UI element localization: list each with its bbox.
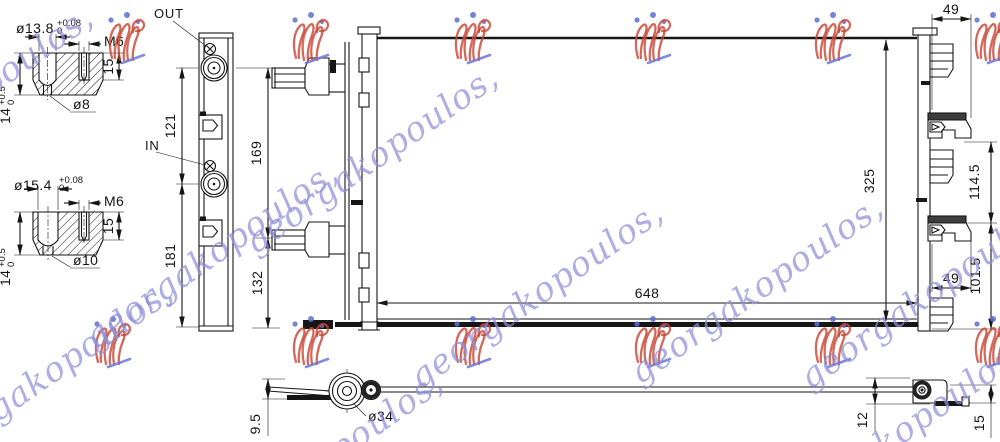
dim-through-dia: ø8 <box>73 96 90 112</box>
rail-bracket-stack-top <box>930 44 953 77</box>
dim-thread-depth: 15 <box>100 218 116 234</box>
label-out-port: OUT <box>154 6 184 21</box>
dim-hole-dia: ø15.4 <box>14 177 52 193</box>
dim-end-height: 9.5 <box>247 414 263 435</box>
dim-pipe-lower: 132 <box>249 271 265 296</box>
rail-mount-bracket-lower <box>928 216 971 241</box>
technical-drawing-page: ø13.8 +0.08 0 M6 15 14 +0.5 0 ø8 <box>0 0 1000 442</box>
dim-hole-tol-lower: 0 <box>59 183 64 194</box>
brand-watermark-text: georgakopoulos, <box>182 362 451 442</box>
svg-text:0: 0 <box>6 100 17 105</box>
dim-thread-depth: 15 <box>100 58 116 74</box>
condenser-drawing: ø13.8 +0.08 0 M6 15 14 +0.5 0 ø8 <box>0 0 1000 442</box>
detail-view-lower-bracket: ø15.4 +0.08 0 M6 15 14 +0.5 0 ø10 <box>0 175 124 286</box>
dim-end-offset: 15 <box>971 415 987 431</box>
dim-pipe-upper: 169 <box>248 141 264 166</box>
label-in-port: IN <box>145 138 160 153</box>
dim-thread: M6 <box>104 193 124 209</box>
svg-text:0: 0 <box>6 262 17 267</box>
svg-text:14: 14 <box>0 108 13 124</box>
dim-bracket-spacing: 114.5 <box>966 164 982 200</box>
dim-core-width: 648 <box>635 285 660 301</box>
brand-watermark-text: georgakopoulos, <box>0 272 181 442</box>
dim-port-spacing: 121 <box>162 114 178 139</box>
rail-mount-bracket-upper <box>928 113 971 138</box>
dim-through-dia: ø10 <box>73 252 98 268</box>
watermark-layer: georgakopoulos, georgakopoulos, georgako… <box>0 0 1000 442</box>
svg-text:14: 14 <box>0 270 13 286</box>
rail-bracket-stack-middle <box>930 150 953 183</box>
dim-thickness: 12 <box>854 412 870 428</box>
dim-top-bracket-width: 49 <box>943 1 959 17</box>
dim-body-height: 14 +0.5 0 <box>0 248 17 286</box>
